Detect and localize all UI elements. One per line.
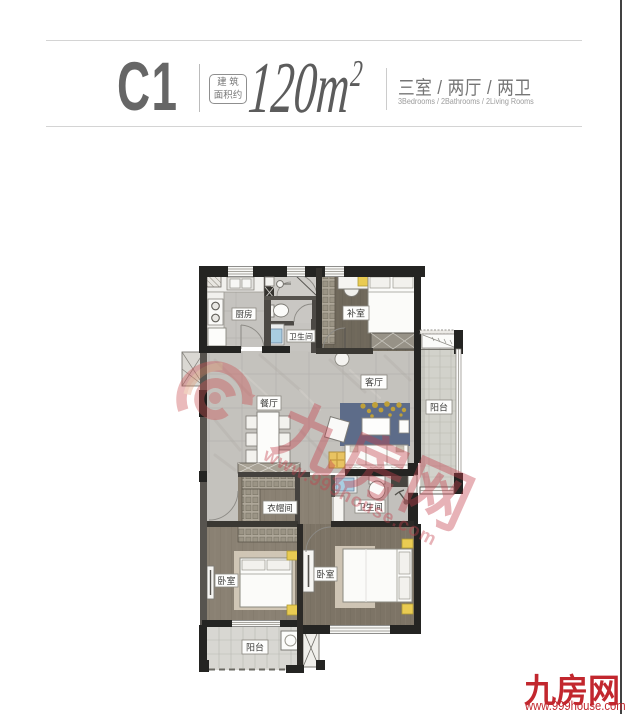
svg-text:补室: 补室 bbox=[347, 308, 365, 319]
svg-text:厨房: 厨房 bbox=[235, 309, 252, 319]
svg-text:卧室: 卧室 bbox=[217, 575, 235, 586]
svg-text:阳台: 阳台 bbox=[430, 402, 448, 413]
svg-text:卫生间: 卫生间 bbox=[289, 332, 313, 342]
svg-text:客厅: 客厅 bbox=[365, 377, 383, 388]
svg-text:阳台: 阳台 bbox=[246, 642, 264, 653]
svg-text:卧室: 卧室 bbox=[316, 569, 334, 580]
svg-text:衣帽间: 衣帽间 bbox=[267, 503, 293, 513]
svg-text:餐厅: 餐厅 bbox=[260, 398, 278, 409]
